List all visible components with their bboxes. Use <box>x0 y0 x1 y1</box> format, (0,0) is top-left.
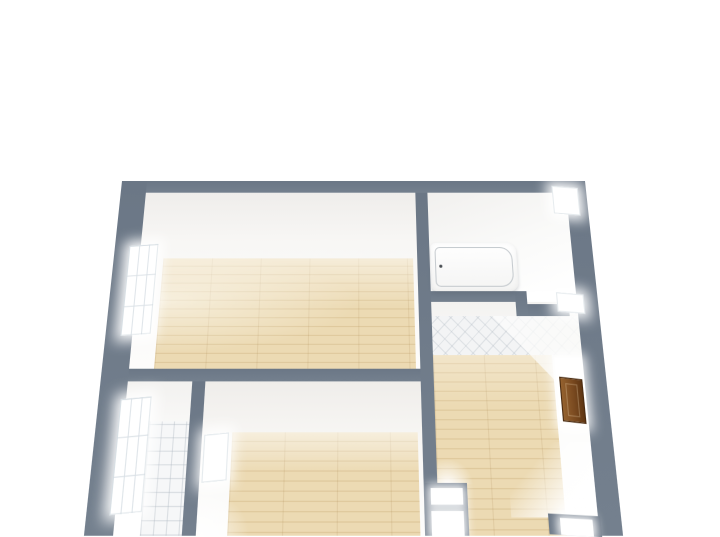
outer-wall-north <box>121 181 587 193</box>
wc-window <box>556 292 586 314</box>
floor-plan-scene <box>0 0 720 533</box>
hallway-door-light <box>507 442 598 517</box>
floor-plan <box>84 181 623 536</box>
bedroom-floor <box>227 432 420 535</box>
doorway-opening-lower <box>431 511 464 536</box>
doorway-opening-upper <box>431 488 464 505</box>
bedroom-balcony-window <box>201 432 229 483</box>
entrance-door <box>559 377 587 424</box>
bedroom-corner-light <box>198 489 251 535</box>
interior-wall-bathroom-south <box>431 291 516 302</box>
bathroom-window <box>551 186 580 216</box>
interior-wall-bathroom-jog <box>515 291 528 316</box>
living-room-floor <box>154 258 416 368</box>
bathtub-drain-icon <box>439 265 442 268</box>
interior-wall-living-south <box>128 369 421 382</box>
bathtub-rim <box>434 247 514 287</box>
doorway-opening-south <box>560 518 594 537</box>
bathtub <box>430 243 519 291</box>
